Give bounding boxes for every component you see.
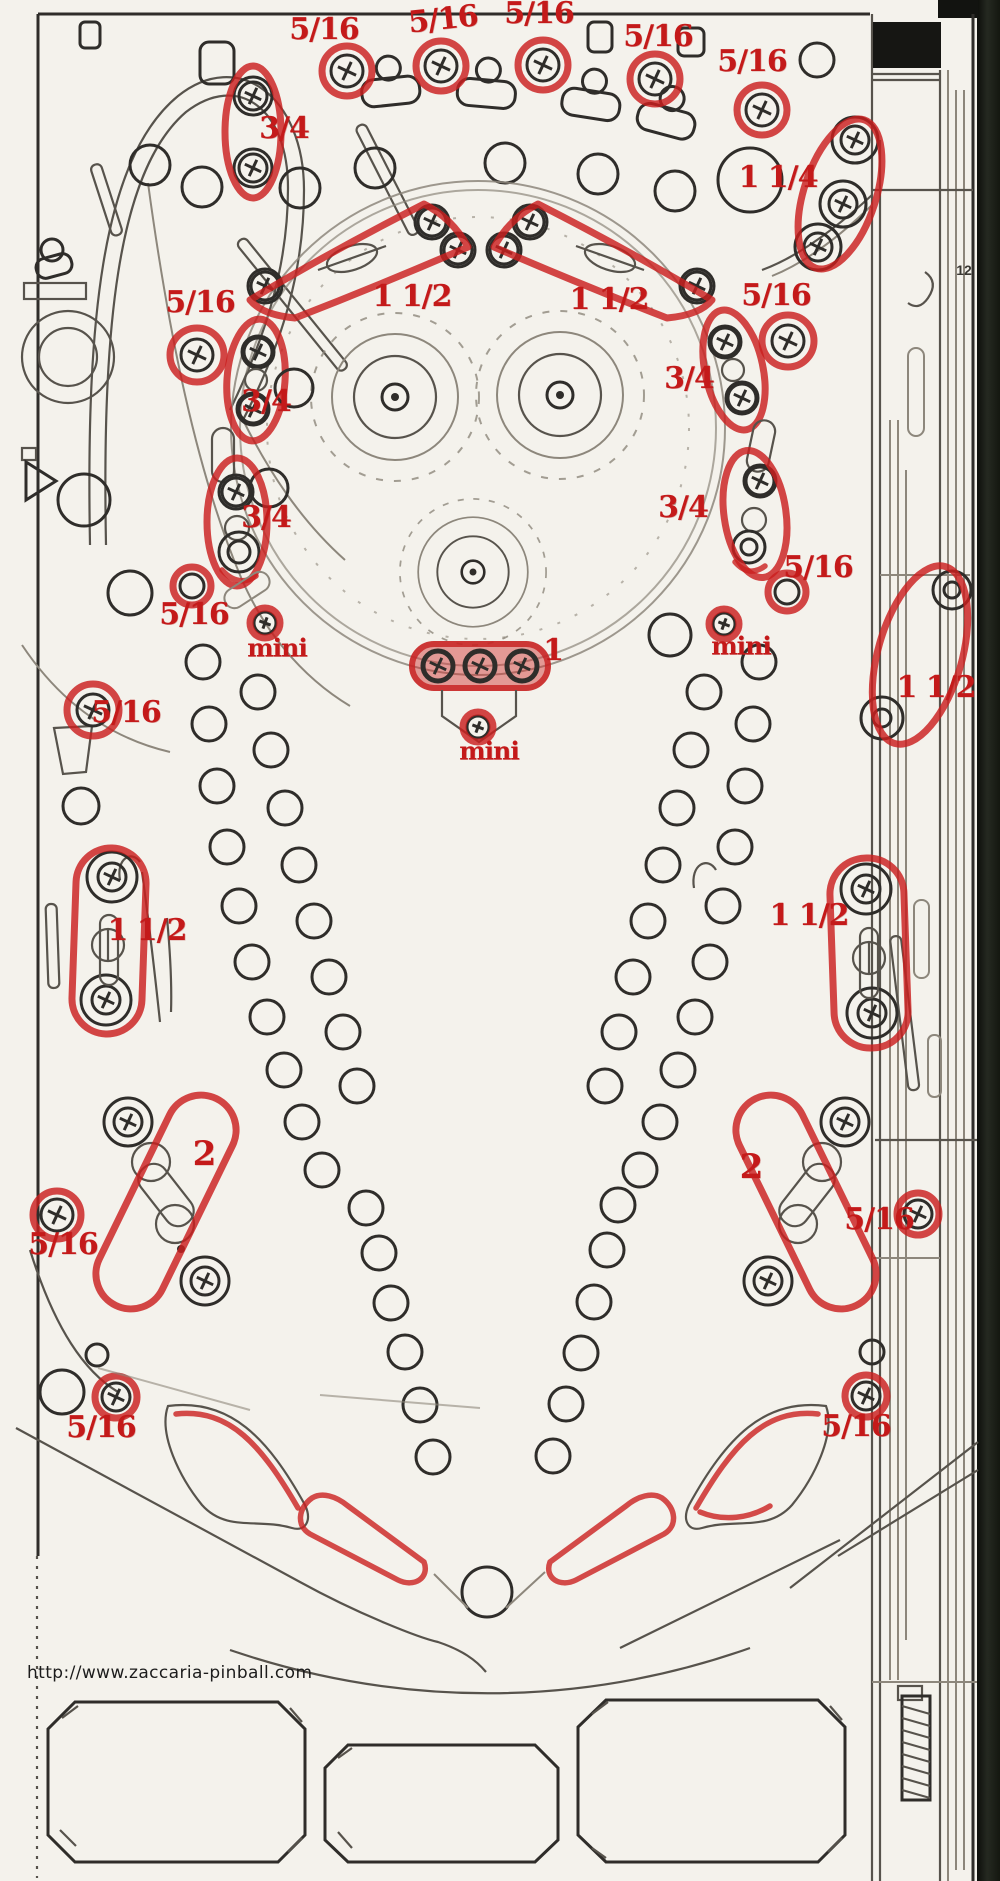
panel-right: [578, 1700, 845, 1862]
watermark-url: http://www.zaccaria-pinball.com: [27, 1663, 312, 1683]
red-capsule-lane-1-1-2: [854, 555, 985, 755]
center-arch-and-bumpers: [231, 181, 725, 675]
lane-guide-left: [166, 1405, 308, 1529]
lower-slingshot-right-2: [724, 1083, 888, 1320]
pop-bumper-left: [311, 313, 479, 481]
panel-left: [48, 1702, 305, 1862]
lower-slingshot-left-1-1-2: [46, 847, 172, 1035]
lower-slingshot-right-1-1-2: [693, 857, 919, 1091]
pop-bumper-right: [476, 311, 644, 479]
flipper-area: [16, 1340, 887, 1693]
panel-center: [325, 1745, 558, 1862]
drain-ball: [462, 1567, 512, 1617]
pop-bumper-lower: [400, 499, 546, 645]
flipper-right: [549, 1495, 674, 1583]
mid-right-fixtures: [649, 304, 986, 755]
lower-slingshot-left-2: [84, 1083, 248, 1320]
playfield-drawing: [0, 0, 1000, 1881]
playfield-border: [37, 14, 870, 1878]
flipper-left: [300, 1495, 425, 1583]
hole-chains: [186, 645, 776, 1474]
center-one-inch-assembly: [412, 644, 548, 742]
playfield-scan: 5/165/165/165/165/163/41 1/45/161 1/21 1…: [0, 0, 1000, 1881]
bottom-panels: [48, 1686, 930, 1862]
scan-dark-strip: [977, 0, 1000, 1881]
red-capsule-3-4: [225, 66, 281, 198]
left-edge-fixtures: [22, 239, 170, 1392]
lane-top-block: [873, 22, 941, 68]
outlane-posts-5-16: [33, 1191, 939, 1239]
left-kicker: [22, 311, 114, 403]
